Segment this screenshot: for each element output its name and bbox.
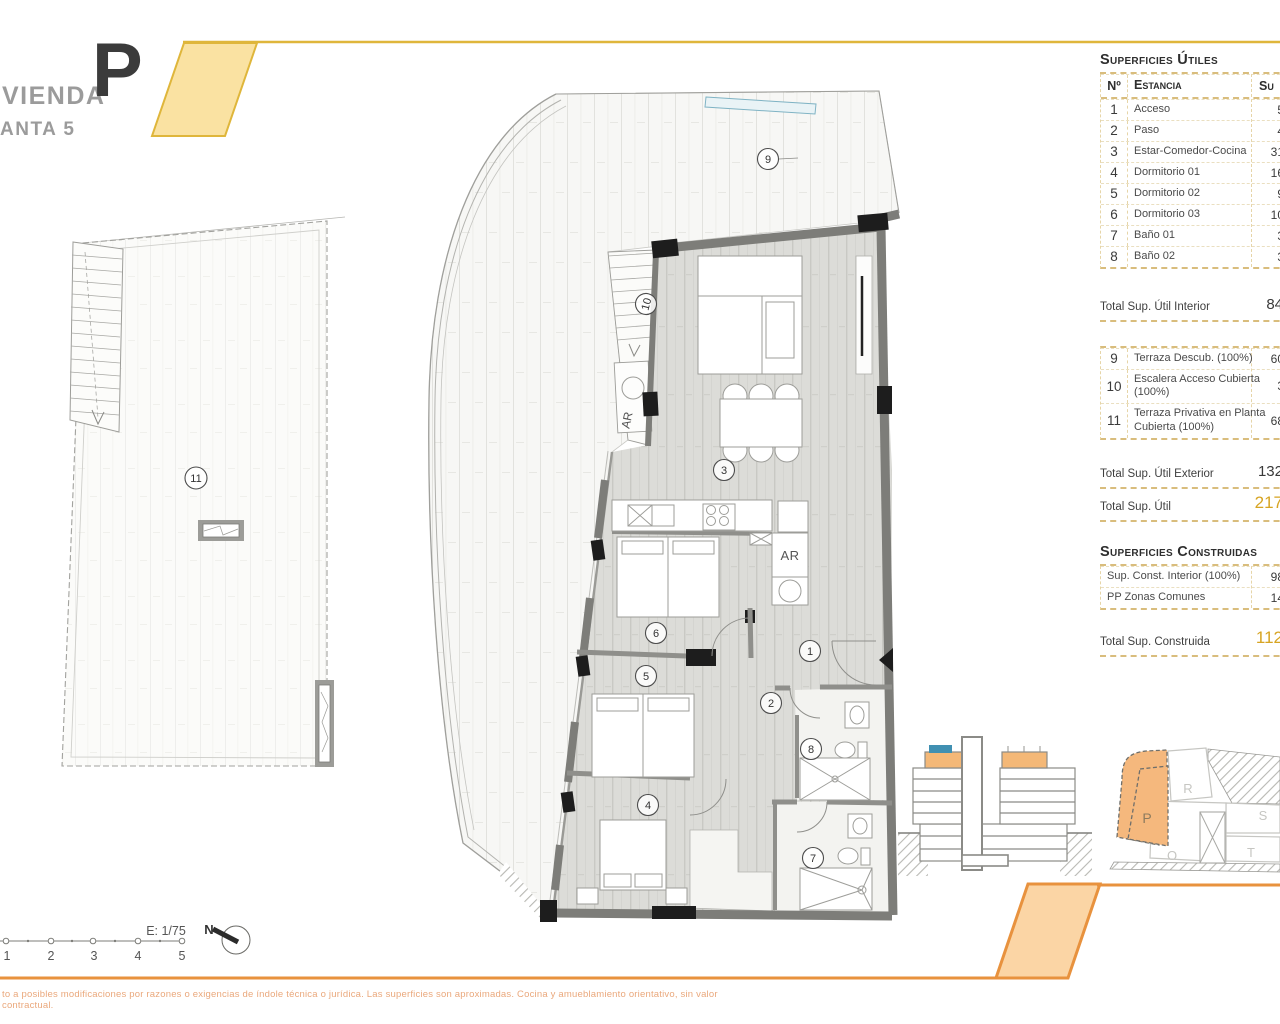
svg-text:7: 7 — [810, 853, 816, 865]
room-label-3: 3 — [714, 460, 735, 481]
svg-text:8: 8 — [808, 744, 814, 756]
row-no: 4 — [1101, 165, 1127, 180]
row-value: 68 — [1209, 414, 1280, 428]
site-letter-s: S — [1259, 808, 1268, 823]
row-value: 3 — [1209, 250, 1280, 264]
room-label-text: 11 — [190, 473, 201, 485]
table-row: 8Baño 023 — [1101, 246, 1280, 267]
roof-stair — [70, 242, 123, 432]
roof-terrace-plan: 11 — [62, 217, 345, 767]
total-value: 84 — [1208, 296, 1280, 313]
gold-parallelogram — [152, 43, 257, 136]
total-built-row: Total Sup. Construida 112 — [1100, 630, 1280, 657]
row-no: 2 — [1101, 123, 1127, 138]
scale-tick-1: 1 — [4, 949, 11, 963]
project-title: VIENDA — [2, 82, 105, 111]
north-label: N — [204, 922, 213, 937]
table-row: 11Terraza Privativa en Planta Cubierta (… — [1101, 403, 1280, 438]
table-row: 1Acceso5 — [1101, 99, 1280, 120]
total-value: 132 — [1208, 463, 1280, 480]
row-value: 14 — [1209, 591, 1280, 605]
total-label: Total Sup. Útil Exterior — [1100, 468, 1214, 480]
table-row: 7Baño 013 — [1101, 225, 1280, 246]
site-letter-o: O — [1167, 848, 1177, 863]
room-label-7: 7 — [803, 848, 824, 869]
row-value: 3 — [1209, 379, 1280, 393]
row-no: 9 — [1101, 351, 1127, 366]
beds-dormitorio-03 — [617, 537, 719, 617]
north-arrow: N — [204, 922, 250, 954]
section-pool — [929, 745, 952, 753]
site-location-plan: P R S O T — [1110, 748, 1280, 872]
row-value: 9 — [1209, 187, 1280, 201]
scale-tick-5: 5 — [179, 949, 186, 963]
row-no: 6 — [1101, 207, 1127, 222]
site-letter-t: T — [1247, 845, 1255, 860]
legal-disclaimer: to a posibles modificaciones por razones… — [2, 989, 747, 1011]
table-row: 10Escalera Acceso Cubierta (100%)3 — [1101, 369, 1280, 404]
roof-skylight — [198, 520, 244, 541]
col-room: Estancia — [1127, 75, 1280, 97]
row-no: 7 — [1101, 228, 1127, 243]
table-row: PP Zonas Comunes14 — [1101, 587, 1280, 608]
row-value: 16 — [1209, 166, 1280, 180]
row-no: 11 — [1101, 413, 1127, 428]
row-value: 31 — [1209, 145, 1280, 159]
kitchen-counter — [612, 500, 808, 532]
site-letter-p: P — [1142, 810, 1151, 826]
svg-text:1: 1 — [807, 646, 813, 658]
site-letter-r: R — [1183, 781, 1192, 796]
section-core — [962, 737, 982, 870]
col-area: Su — [1259, 79, 1274, 93]
dining-set — [720, 384, 802, 462]
unit-letter: P — [92, 33, 143, 109]
built-surfaces-table: Sup. Const. Interior (100%)98 PP Zonas C… — [1100, 566, 1280, 610]
total-value-highlight: 112 — [1208, 628, 1280, 648]
table-row: Sup. Const. Interior (100%)98 — [1101, 566, 1280, 587]
room-label-9: 9 — [758, 149, 779, 170]
row-no: 5 — [1101, 186, 1127, 201]
room-label-6: 6 — [646, 623, 667, 644]
svg-text:4: 4 — [645, 800, 651, 812]
main-floor-plan: AR — [429, 91, 899, 922]
svg-text:9: 9 — [765, 154, 771, 166]
table-row: 6Dormitorio 0310 — [1101, 204, 1280, 225]
table-row: 2Paso4 — [1101, 120, 1280, 141]
orange-parallelogram — [996, 884, 1100, 978]
scale-tick-4: 4 — [135, 949, 142, 963]
table-header-row: Nº Estancia Su — [1101, 74, 1280, 99]
sheet-drawing: 11 AR — [0, 0, 1280, 1024]
room-label-2: 2 — [761, 693, 782, 714]
row-no: 8 — [1101, 249, 1127, 264]
col-no: Nº — [1101, 79, 1127, 93]
row-value: 3 — [1209, 229, 1280, 243]
table-row: 4Dormitorio 0116 — [1101, 162, 1280, 183]
useful-surfaces-table: Nº Estancia Su 1Acceso5 2Paso4 3Estar-Co… — [1100, 74, 1280, 269]
room-label-1: 1 — [800, 641, 821, 662]
total-exterior-row: Total Sup. Útil Exterior 132 — [1100, 462, 1280, 489]
total-interior-row: Total Sup. Útil Interior 84 — [1100, 295, 1280, 322]
scale-label: E: 1/75 — [146, 924, 186, 938]
room-label-11: 11 — [185, 467, 207, 489]
room-label-5: 5 — [636, 666, 657, 687]
svg-text:6: 6 — [653, 628, 659, 640]
total-label: Total Sup. Útil Interior — [1100, 301, 1210, 313]
built-surfaces-title: Superficies Construidas — [1100, 544, 1280, 566]
row-no: 10 — [1101, 379, 1127, 394]
floor-plan-sheet: 11 AR — [0, 0, 1280, 1024]
wall-niche — [856, 256, 872, 374]
svg-text:2: 2 — [768, 698, 774, 710]
row-no: 1 — [1101, 102, 1127, 117]
row-value: 60 — [1209, 352, 1280, 366]
row-value: 98 — [1209, 570, 1280, 584]
total-label: Total Sup. Construida — [1100, 636, 1210, 648]
table-row: 3Estar-Comedor-Cocina31 — [1101, 141, 1280, 162]
table-row: 9Terraza Descub. (100%)60 — [1101, 348, 1280, 369]
closet-label: AR — [780, 548, 799, 563]
roof-vent — [315, 680, 334, 767]
total-value-highlight: 217 — [1208, 493, 1280, 513]
sofa — [698, 256, 802, 374]
svg-text:3: 3 — [721, 465, 727, 477]
total-label: Total Sup. Útil — [1100, 501, 1171, 513]
building-section — [898, 737, 1092, 876]
scale-tick-2: 2 — [48, 949, 55, 963]
svg-text:5: 5 — [643, 671, 649, 683]
section-highlight-left — [925, 752, 962, 768]
row-value: 5 — [1209, 103, 1280, 117]
row-value: 10 — [1209, 208, 1280, 222]
scale-bar: 1 2 3 4 5 E: 1/75 — [0, 924, 186, 963]
area-tables-panel: Superficies Útiles Nº Estancia Su 1Acces… — [1100, 52, 1280, 657]
room-label-4: 4 — [638, 795, 659, 816]
useful-surfaces-title: Superficies Útiles — [1100, 52, 1280, 74]
exterior-surfaces-table: 9Terraza Descub. (100%)60 10Escalera Acc… — [1100, 346, 1280, 440]
beds-dormitorio-02 — [592, 694, 694, 777]
scale-tick-3: 3 — [91, 949, 98, 963]
row-no: 3 — [1101, 144, 1127, 159]
table-row: 5Dormitorio 029 — [1101, 183, 1280, 204]
row-value: 4 — [1209, 124, 1280, 138]
floor-subtitle: ANTA 5 — [0, 119, 76, 141]
section-highlight-right — [1002, 752, 1047, 768]
room-label-8: 8 — [801, 739, 822, 760]
total-util-row: Total Sup. Útil 217 — [1100, 495, 1280, 522]
